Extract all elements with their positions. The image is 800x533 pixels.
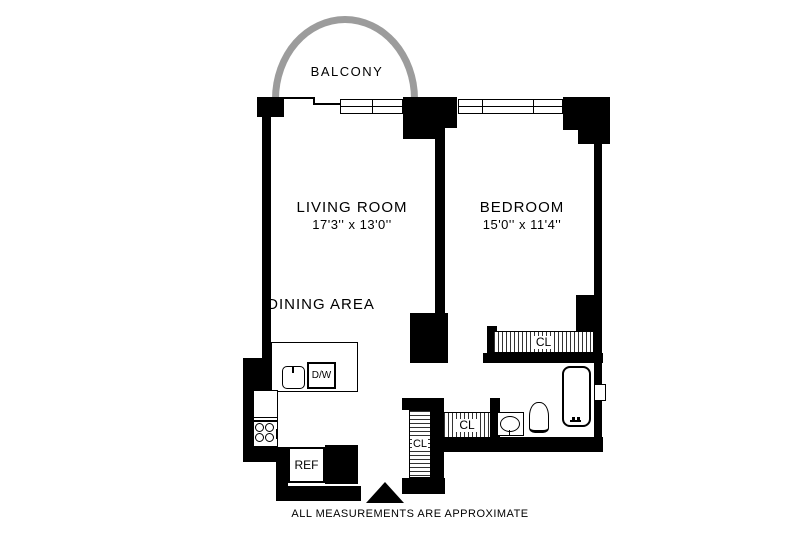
entry-closet: CL [409, 410, 431, 478]
hall-closet: CL [443, 412, 491, 438]
wall-center-divider-bottom [410, 313, 448, 363]
balcony-arc [272, 16, 418, 99]
wall-bathroom-bottom [443, 437, 603, 452]
bedroom-window-midline [458, 106, 563, 107]
stove-burner-1 [255, 423, 264, 432]
wall-entry-closet-bottom [402, 478, 445, 494]
balcony-label: BALCONY [287, 64, 407, 79]
balcony-door-line-lower [313, 103, 343, 105]
balcony-door-line-upper [283, 97, 315, 99]
entrance-marker [366, 482, 404, 503]
dishwasher-label: D/W [309, 364, 334, 387]
bathtub-drain [570, 420, 581, 422]
wall-top-right-corner [563, 97, 610, 130]
bathtub-drain-dot-2 [577, 417, 580, 420]
refrigerator: REF [288, 447, 325, 483]
bathroom-sink-drain [509, 430, 510, 435]
stove-burner-2 [265, 423, 274, 432]
wall-top-center-step [403, 97, 436, 139]
kitchen-counter-left-divider [253, 417, 278, 418]
toilet [529, 402, 549, 433]
bathroom-sink-basin [500, 416, 520, 432]
floor-plan: BALCONY CL CL CL [0, 0, 800, 533]
wall-bathroom-top [483, 353, 603, 363]
wall-left [262, 112, 271, 362]
kitchen-sink-faucet [292, 366, 294, 373]
disclaimer-text: ALL MEASUREMENTS ARE APPROXIMATE [260, 508, 560, 520]
hall-closet-label: CL [456, 419, 477, 432]
entry-closet-label: CL [412, 438, 428, 451]
bathtub-drain-dot-1 [572, 417, 575, 420]
bathroom-wall-niche [594, 384, 606, 401]
stove-burner-4 [265, 433, 274, 442]
refrigerator-label: REF [290, 449, 323, 481]
dining-area-label: DINING AREA [221, 296, 421, 313]
bedroom-closet: CL [493, 331, 594, 353]
wall-ref-block [325, 445, 358, 484]
stove-control-mark [276, 429, 278, 439]
bedroom-closet-label: CL [533, 336, 554, 349]
wall-bottom-left [276, 486, 361, 501]
wall-kitchen-corner-v [276, 458, 288, 487]
dishwasher: D/W [307, 362, 336, 389]
bedroom-label: BEDROOM [422, 199, 622, 216]
wall-right-thick [576, 295, 602, 331]
bedroom-dimensions: 15'0'' x 11'4'' [422, 217, 622, 232]
stove-burner-3 [255, 433, 264, 442]
living-room-window-midline [340, 106, 403, 107]
